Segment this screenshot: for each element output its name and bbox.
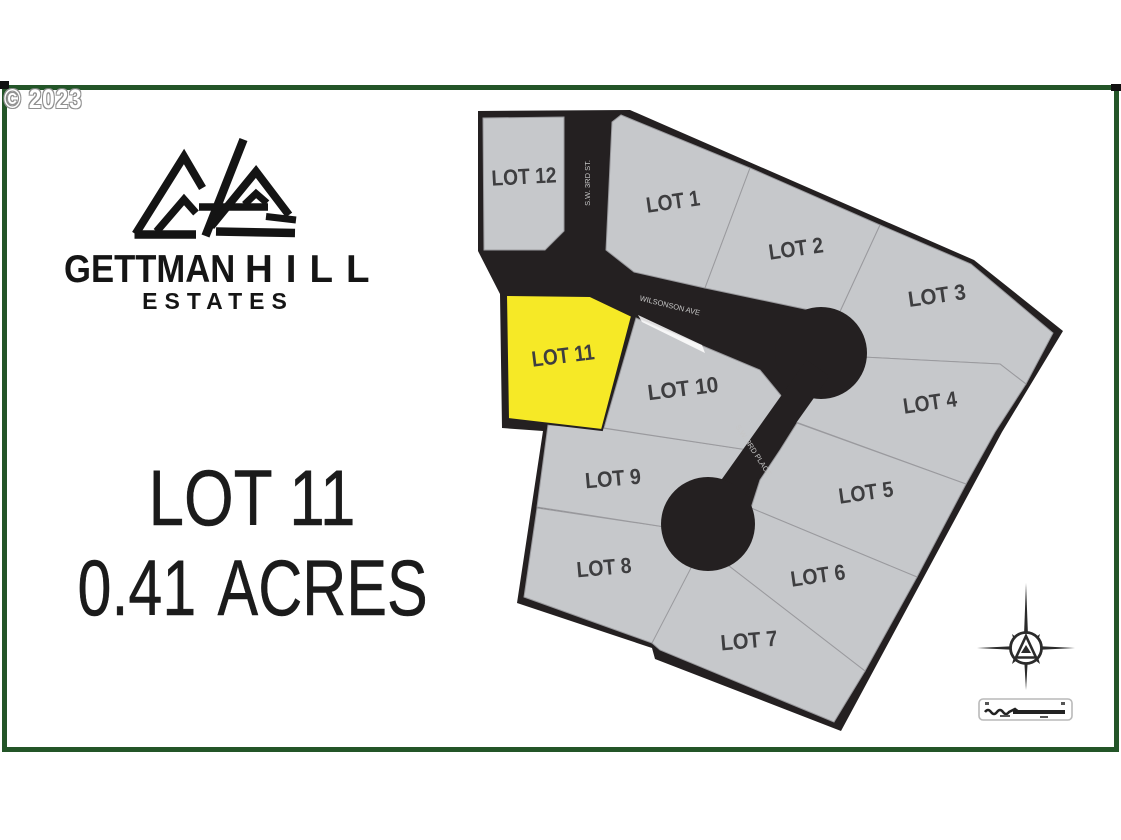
- svg-text:S.W. 3RD ST.: S.W. 3RD ST.: [583, 160, 592, 206]
- svg-text:LOT 7: LOT 7: [719, 626, 778, 656]
- svg-text:LOT 8: LOT 8: [575, 553, 632, 583]
- svg-text:LOT 12: LOT 12: [491, 162, 557, 190]
- svg-text:LOT 9: LOT 9: [584, 464, 642, 494]
